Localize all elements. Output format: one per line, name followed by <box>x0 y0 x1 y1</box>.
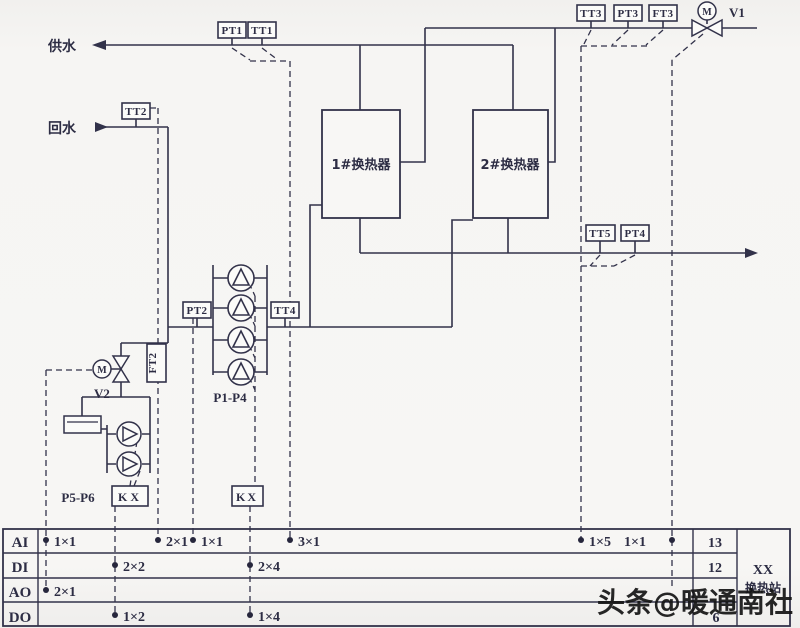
piping-lines <box>82 20 757 473</box>
primary-return-arrow-icon <box>745 248 758 258</box>
supply-arrow-icon <box>92 40 106 50</box>
instrument-tt5-label: TT5 <box>589 228 611 240</box>
io-count: 1×1 <box>624 535 646 550</box>
io-count: 3×1 <box>298 535 320 550</box>
valve-body-icon <box>692 20 707 36</box>
io-count: 1×5 <box>589 535 611 550</box>
valve-body-icon <box>113 356 129 369</box>
instrument-pt3-label: PT3 <box>617 8 638 20</box>
io-total-di: 12 <box>708 561 722 576</box>
io-count: 1×1 <box>54 535 76 550</box>
pump-group-p5-p6 <box>117 422 141 476</box>
pump-group-p1-p4 <box>228 265 254 385</box>
io-count: 1×4 <box>258 610 280 625</box>
motor-letter: M <box>97 365 107 376</box>
valve-body-icon <box>707 20 722 36</box>
motor-letter: M <box>702 7 712 18</box>
io-count: 1×1 <box>201 535 223 550</box>
instrument-ft3-label: FT3 <box>652 8 673 20</box>
valve-v2-label: V2 <box>94 386 110 401</box>
heat-exchanger-2-label: 2#换热器 <box>481 157 541 173</box>
pump-group-p1-p4-label: P1-P4 <box>213 390 247 405</box>
valve-v1-label: V1 <box>729 5 745 20</box>
io-count: 2×4 <box>258 560 280 575</box>
return-arrow-icon <box>95 122 108 132</box>
instrument-ft2-label: FT2 <box>147 352 159 373</box>
io-count: 2×1 <box>54 585 76 600</box>
io-total-ai: 13 <box>708 536 722 551</box>
instrument-tt2-label: TT2 <box>125 106 147 118</box>
heat-exchange-station-diagram: 1#换热器 2#换热器 P1-P4 M V2 P5-P6 KX KX M V1 <box>0 0 800 628</box>
control-box-kx1-label: KX <box>118 490 142 504</box>
heat-exchanger-1-label: 1#换热器 <box>332 157 392 173</box>
io-count: 2×1 <box>166 535 188 550</box>
instrument-pt1-label: PT1 <box>221 25 242 37</box>
watermark-text: 头条@暖通南社 <box>597 586 793 619</box>
supply-water-label: 供水 <box>47 38 77 55</box>
instrument-tt3-label: TT3 <box>580 8 602 20</box>
pump-group-p5-p6-label: P5-P6 <box>61 490 95 505</box>
io-count: 2×2 <box>123 560 145 575</box>
io-row-label-ai: AI <box>12 535 29 551</box>
control-box-kx2-label: KX <box>236 490 258 504</box>
instrument-pt4-label: PT4 <box>624 228 645 240</box>
io-row-label-di: DI <box>12 560 29 576</box>
io-row-label-ao: AO <box>9 585 32 601</box>
return-water-label: 回水 <box>48 120 77 137</box>
water-tank <box>64 416 101 433</box>
station-name-line1: XX <box>753 563 773 578</box>
instrument-tt1-label: TT1 <box>251 25 273 37</box>
valve-body-icon <box>113 369 129 382</box>
instrument-tt4-label: TT4 <box>274 305 296 317</box>
instrument-pt2-label: PT2 <box>186 305 207 317</box>
schematic-canvas: 1#换热器 2#换热器 P1-P4 M V2 P5-P6 KX KX M V1 <box>0 0 800 628</box>
io-count: 1×2 <box>123 610 145 625</box>
io-row-label-do: DO <box>9 610 32 626</box>
